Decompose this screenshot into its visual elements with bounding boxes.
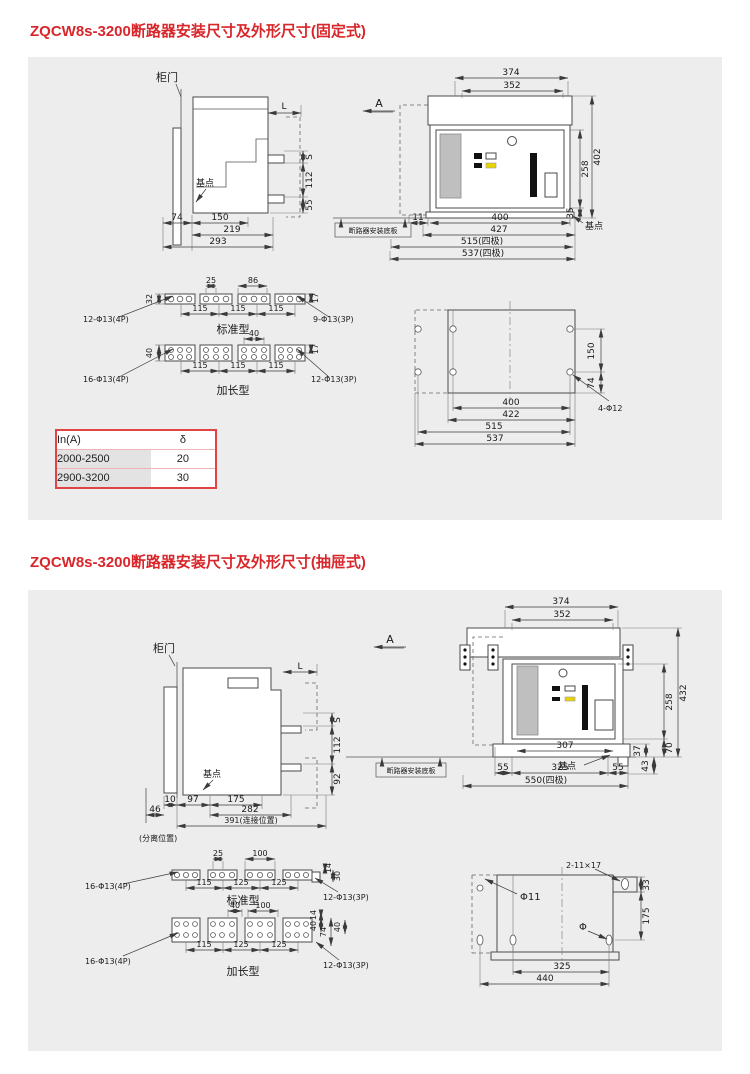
- dim-115: 115: [268, 304, 283, 313]
- hole-callout-right: 12-Φ13(3P): [311, 375, 357, 384]
- dim-40: 40: [230, 901, 240, 910]
- mounting-plate-outline: [415, 301, 575, 401]
- section2-panel: 柜门 L S 112 92: [28, 590, 722, 1051]
- standard-busbar: [123, 859, 338, 892]
- hole-callout-left: 16-Φ13(4P): [83, 375, 129, 384]
- hole-callout-left: 16-Φ13(4P): [85, 882, 131, 891]
- dim-150: 150: [587, 342, 597, 359]
- dim-112: 112: [333, 736, 343, 753]
- fixed-mounting-hole-drawing: 150 74 4-Φ12 400 422 515 537: [406, 289, 716, 464]
- dim-14: 14: [309, 910, 318, 920]
- dim-S: S: [305, 154, 315, 160]
- dim-550-4p: 550(四极): [525, 774, 567, 786]
- drawout-mounting-hole-drawing: Φ11 2-11×17 Φ 33 175 325 440: [423, 835, 723, 1000]
- dim-115: 115: [196, 878, 211, 887]
- hole-callout-left: 16-Φ13(4P): [85, 957, 131, 966]
- dim-307: 307: [556, 741, 573, 751]
- base-point-label: 基点: [585, 220, 603, 232]
- dim-125: 125: [233, 878, 248, 887]
- dim-515-4p: 515(四极): [461, 235, 503, 247]
- dim-115: 115: [192, 304, 207, 313]
- dim-125: 125: [233, 940, 248, 949]
- cell-range-1: 2000-2500: [56, 450, 151, 469]
- dim-74: 74: [587, 377, 597, 389]
- dim-175: 175: [227, 795, 244, 805]
- dim-40: 40: [249, 329, 259, 338]
- dim-37: 37: [633, 745, 643, 756]
- dim-427: 427: [490, 225, 507, 235]
- dim-74: 74: [319, 927, 328, 937]
- dim-100: 100: [255, 901, 270, 910]
- hole-callout-right: 9-Φ13(3P): [313, 315, 354, 324]
- dim-115: 115: [196, 940, 211, 949]
- drawout-busbar-drawings: 25 100 14 30 115 125 125 16-Φ13(4P) 12-Φ…: [83, 838, 413, 978]
- dim-L: L: [297, 662, 302, 672]
- catalog-page: { "page": { "bg": "#ffffff", "panel_bg":…: [0, 0, 750, 1074]
- dim-258: 258: [665, 693, 675, 710]
- dim-391-connected: 391(连接位置): [224, 815, 278, 825]
- dim-43: 43: [641, 760, 651, 771]
- hole-callout-right: 12-Φ13(3P): [323, 961, 369, 970]
- dim-258: 258: [581, 160, 591, 177]
- dim-97: 97: [187, 795, 198, 805]
- dim-219: 219: [223, 225, 240, 235]
- dim-17: 17: [311, 293, 320, 303]
- mounting-plate-dimensions: [415, 329, 609, 447]
- dim-40: 40: [145, 348, 154, 358]
- dim-74: 74: [171, 213, 183, 223]
- dim-352: 352: [503, 81, 520, 91]
- view-label-A: A: [386, 633, 394, 646]
- dim-11: 11: [412, 213, 423, 223]
- dim-25: 25: [213, 849, 223, 858]
- gap-spec-table: In(A) δ 2000-2500 20 2900-3200 30: [55, 429, 217, 489]
- hole-callout-4xphi12: 4-Φ12: [598, 404, 622, 413]
- dim-440: 440: [536, 974, 553, 984]
- dim-402: 402: [593, 148, 603, 165]
- cell-delta-1: 20: [151, 450, 216, 469]
- cabinet-door-label: 柜门: [156, 70, 178, 84]
- dim-S: S: [333, 717, 343, 723]
- dim-92: 92: [333, 773, 343, 784]
- dim-400: 400: [491, 213, 508, 223]
- dim-282: 282: [241, 805, 258, 815]
- table-header-row: In(A) δ: [56, 430, 216, 450]
- hole-callout-right: 12-Φ13(3P): [323, 893, 369, 902]
- dim-55: 55: [612, 763, 623, 773]
- dim-46: 46: [149, 805, 161, 815]
- dim-175: 175: [642, 907, 652, 924]
- dim-10: 10: [164, 795, 176, 805]
- dim-55: 55: [497, 763, 508, 773]
- dim-537: 537: [486, 434, 503, 444]
- hole-callout-phi11: Φ11: [520, 892, 541, 903]
- dim-55: 55: [305, 199, 315, 210]
- table-row: 2000-2500 20: [56, 450, 216, 469]
- dim-400: 400: [502, 398, 519, 408]
- base-point-label: 基点: [196, 177, 214, 189]
- hole-callout-phi: Φ: [579, 922, 587, 933]
- dim-115: 115: [268, 361, 283, 370]
- cradle-outline: [472, 867, 637, 965]
- dim-14: 14: [324, 863, 333, 873]
- dim-374: 374: [552, 597, 569, 607]
- dim-352: 352: [553, 610, 570, 620]
- drawout-front-view-drawing: A: [346, 595, 720, 800]
- hole-callout-left: 12-Φ13(4P): [83, 315, 129, 324]
- dim-293: 293: [209, 237, 226, 247]
- dim-25: 25: [206, 276, 216, 285]
- table-row: 2900-3200 30: [56, 469, 216, 489]
- section2-title: ZQCW8s-3200断路器安装尺寸及外形尺寸(抽屉式): [30, 551, 366, 572]
- dim-70: 70: [665, 742, 675, 754]
- dim-17: 17: [311, 344, 320, 354]
- view-label-A: A: [375, 97, 383, 110]
- cabinet-door-label: 柜门: [153, 641, 175, 655]
- col-header-in: In(A): [56, 430, 151, 450]
- dim-86: 86: [248, 276, 258, 285]
- dim-33: 33: [642, 879, 652, 890]
- fixed-front-outline: [333, 96, 574, 218]
- dim-374: 374: [502, 68, 519, 78]
- dim-L: L: [281, 102, 286, 112]
- dim-35: 35: [566, 207, 576, 218]
- cell-range-2: 2900-3200: [56, 469, 151, 489]
- dim-422: 422: [502, 410, 519, 420]
- dim-115: 115: [230, 304, 245, 313]
- dim-115: 115: [192, 361, 207, 370]
- dim-125: 125: [271, 878, 286, 887]
- section1-panel: 柜门 L S 112 55 基点 74 150 219: [28, 57, 722, 520]
- dim-325: 325: [553, 962, 570, 972]
- dim-112: 112: [305, 171, 315, 188]
- mounting-plate-label: 断路器安装底板: [387, 766, 436, 775]
- dim-40: 40: [309, 921, 318, 931]
- col-header-delta: δ: [151, 430, 216, 450]
- cell-delta-2: 30: [151, 469, 216, 489]
- dim-40: 40: [333, 922, 342, 932]
- view-direction-arrow: [363, 111, 395, 112]
- dim-100: 100: [252, 849, 267, 858]
- extended-type-label: 加长型: [217, 383, 250, 397]
- dim-325: 325: [551, 763, 568, 773]
- mounting-plate-label: 断路器安装底板: [349, 226, 398, 235]
- extended-type-label: 加长型: [227, 964, 260, 978]
- drawout-front-outline: [346, 628, 636, 766]
- hole-callout-slot: 2-11×17: [566, 861, 601, 870]
- view-direction-arrow: [374, 647, 406, 648]
- dim-537-4p: 537(四极): [462, 247, 504, 259]
- dim-432: 432: [679, 684, 689, 701]
- fixed-front-view-drawing: A: [333, 65, 718, 265]
- dim-30: 30: [333, 871, 342, 881]
- dim-125: 125: [271, 940, 286, 949]
- fixed-busbar-drawings: 25 86 32 17 115 115 115 12-Φ13(4P) 9-Φ13…: [83, 269, 403, 399]
- dim-115: 115: [230, 361, 245, 370]
- dim-515: 515: [485, 422, 502, 432]
- section1-title: ZQCW8s-3200断路器安装尺寸及外形尺寸(固定式): [30, 20, 366, 41]
- standard-type-label: 标准型: [217, 322, 250, 336]
- dim-150: 150: [211, 213, 228, 223]
- dim-32: 32: [145, 294, 154, 304]
- base-point-label: 基点: [203, 768, 221, 780]
